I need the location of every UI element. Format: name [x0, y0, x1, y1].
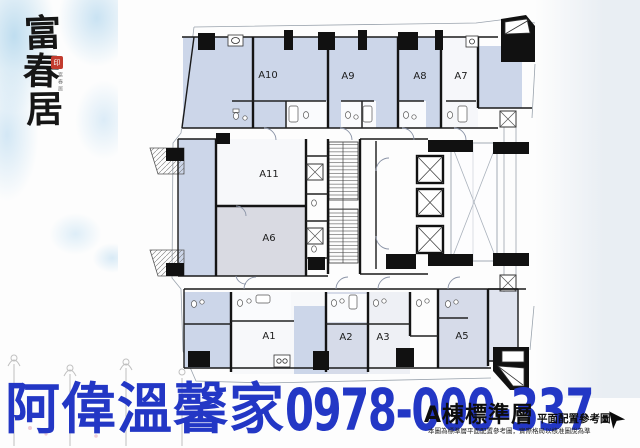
- disclaimer-text: 本圖為標準層平面配置參考圖，實際格局以核准圖說為準: [428, 425, 628, 435]
- unit-label-a6: A6: [262, 233, 275, 244]
- duct-x-icon: [307, 228, 323, 244]
- seal-glyph: 印: [54, 58, 61, 68]
- elevator-bank: [417, 156, 443, 253]
- flyer-canvas: 富 春 居 印 富春居: [0, 0, 640, 448]
- unit-label-a2: A2: [339, 332, 352, 343]
- unit-label-a5: A5: [455, 331, 468, 342]
- unit-label-a9: A9: [341, 71, 354, 82]
- title-char-1: 富: [23, 13, 61, 52]
- title-char-3: 居: [26, 90, 64, 129]
- duct-x-icon: [500, 111, 516, 127]
- lightwell: [451, 143, 497, 261]
- elevator-icon: [417, 226, 443, 253]
- unit-label-a11: A11: [259, 169, 279, 180]
- seal-inscription: 富春居: [57, 72, 64, 93]
- stairs-icon: [329, 142, 358, 263]
- unit-label-a8: A8: [413, 71, 426, 82]
- floor-plan-svg: A10 A9 A8 A7 A11 A6 A1 A2 A3 A5: [136, 6, 546, 398]
- unit-label-a7: A7: [454, 71, 467, 82]
- duct-x-icon: [307, 164, 323, 180]
- elevator-icon: [417, 189, 443, 216]
- unit-label-a10: A10: [258, 70, 278, 81]
- agency-name: 阿偉溫馨家: [5, 382, 285, 437]
- calligraphy-title: 富 春 居: [24, 14, 61, 128]
- scan-shading: [535, 0, 640, 398]
- unit-label-a3: A3: [376, 332, 389, 343]
- red-seal-icon: 印: [51, 56, 63, 69]
- unit-label-a1: A1: [262, 331, 275, 342]
- elevator-icon: [417, 156, 443, 183]
